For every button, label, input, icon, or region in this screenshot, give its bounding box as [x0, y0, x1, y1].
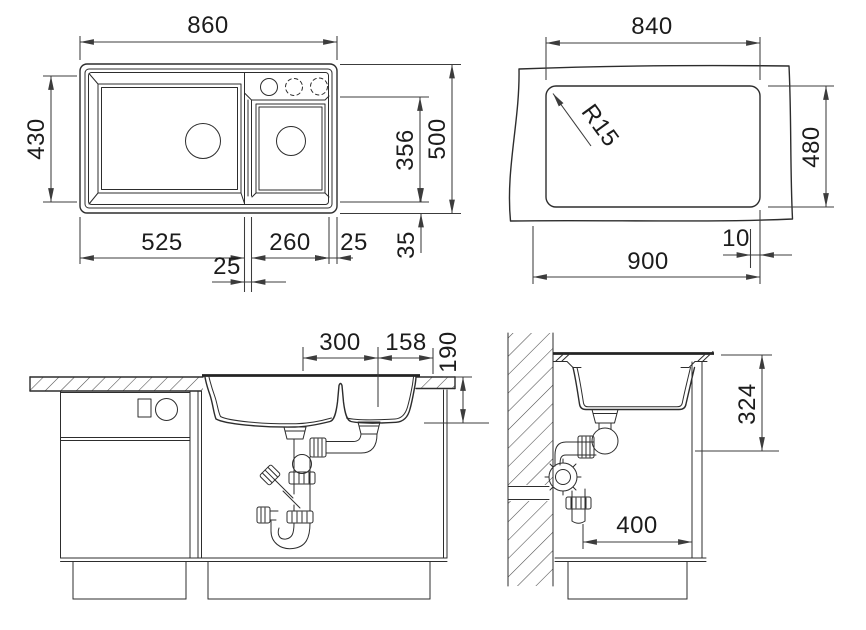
cutout-rect	[546, 86, 760, 207]
dim-label-430: 430	[23, 118, 50, 160]
dim-label-35: 35	[393, 231, 420, 259]
side-view: 324 400	[508, 333, 779, 599]
dim-label-158: 158	[385, 329, 427, 356]
dim-label-500: 500	[424, 118, 451, 160]
appliance-knob	[156, 399, 178, 421]
front-view: 300 158 190	[30, 329, 489, 599]
front-bowl-section	[205, 377, 416, 427]
front-cabinets	[61, 390, 448, 599]
drain-holes	[186, 124, 306, 159]
sink-technical-drawing: 860 430 356 500 525 260	[0, 0, 866, 630]
dim-label-25-gap: 25	[213, 253, 241, 280]
dim-label-840: 840	[631, 13, 673, 40]
small-drain-hole	[277, 127, 306, 156]
plan-sink-outline	[80, 64, 337, 213]
radius-callout: R15	[553, 94, 624, 152]
tap-holes	[261, 78, 328, 96]
tap-hole-drilled	[261, 79, 278, 96]
side-bowl-section	[573, 368, 695, 410]
dim-label-480: 480	[798, 126, 825, 168]
dim-label-260: 260	[269, 229, 311, 256]
dim-label-525: 525	[141, 229, 183, 256]
dim-label-25-edge: 25	[340, 229, 368, 256]
cutout-view: R15 840 480 10 900	[509, 13, 834, 284]
side-wall	[508, 333, 553, 586]
tap-hole-optional-1	[286, 79, 303, 96]
dim-label-324: 324	[734, 383, 761, 425]
dim-label-400: 400	[616, 512, 658, 539]
dim-label-356: 356	[392, 129, 419, 171]
worktop-outline	[509, 66, 792, 221]
dim-label-900: 900	[627, 248, 669, 275]
dim-label-r15: R15	[576, 99, 625, 152]
main-drain-hole	[186, 124, 221, 159]
dim-label-860: 860	[187, 12, 229, 39]
front-worktop	[30, 376, 455, 392]
side-worktop	[553, 352, 714, 368]
plan-view: 860 430 356 500 525 260	[23, 12, 461, 292]
tap-hole-optional-2	[311, 78, 328, 95]
dim-label-190: 190	[435, 331, 462, 373]
appliance-button	[138, 399, 151, 417]
front-plumbing	[257, 422, 380, 549]
cutout-dimensions: 840 480 10 900	[533, 13, 834, 284]
dim-label-10: 10	[722, 225, 750, 252]
dim-label-300: 300	[319, 329, 361, 356]
